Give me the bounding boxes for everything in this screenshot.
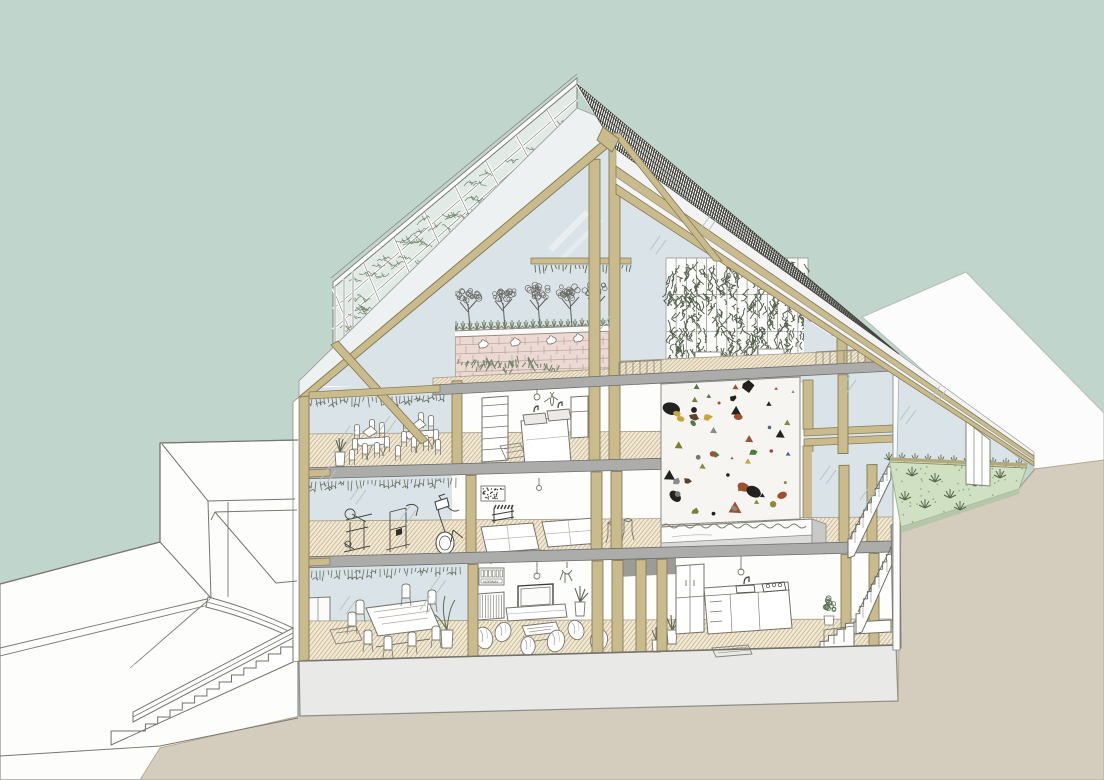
svg-text:NORWAY: NORWAY xyxy=(483,580,499,584)
